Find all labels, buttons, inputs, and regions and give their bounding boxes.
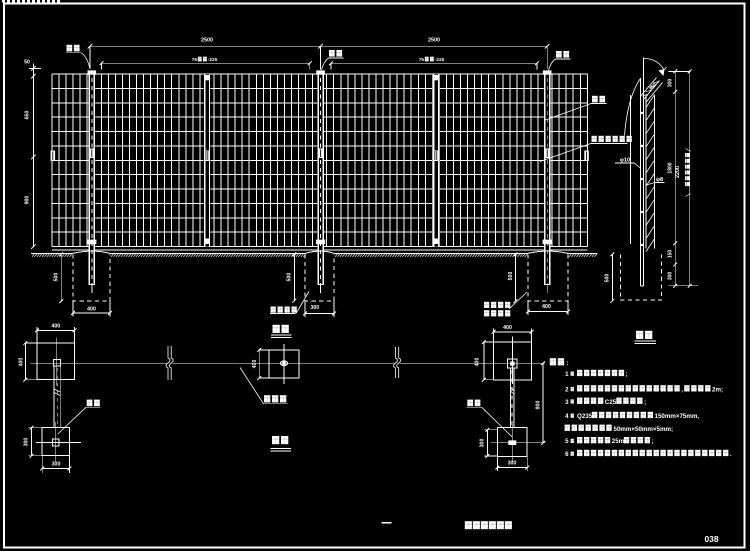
svg-text:800: 800 (535, 401, 541, 410)
svg-text:C25: C25 (605, 399, 617, 406)
svg-text:φ8: φ8 (656, 177, 663, 183)
svg-text:,: , (681, 386, 683, 393)
svg-text:500: 500 (508, 272, 514, 281)
svg-text:900: 900 (25, 196, 31, 205)
svg-text:400: 400 (252, 360, 258, 369)
svg-text:150: 150 (668, 250, 674, 259)
svg-text:6: 6 (565, 451, 569, 458)
svg-text:300: 300 (508, 460, 517, 466)
svg-text:300: 300 (23, 438, 29, 447)
svg-text:2500: 2500 (201, 38, 213, 44)
svg-text:400: 400 (542, 304, 551, 310)
svg-text:300: 300 (52, 462, 61, 468)
svg-text:25m: 25m (612, 438, 625, 445)
svg-text:-225: -225 (435, 57, 445, 62)
svg-text:50: 50 (24, 60, 30, 66)
svg-text:;: ; (644, 399, 646, 406)
svg-text:300: 300 (310, 305, 319, 311)
svg-text:650: 650 (25, 111, 31, 120)
svg-text:400: 400 (51, 323, 60, 329)
svg-text:300: 300 (668, 79, 674, 88)
svg-text:;: ; (652, 438, 654, 445)
svg-text:50mm×50mm×5mm;: 50mm×50mm×5mm; (614, 426, 674, 433)
svg-text:Q235: Q235 (577, 413, 593, 420)
svg-text:400: 400 (475, 358, 481, 367)
svg-text:038: 038 (705, 534, 719, 544)
svg-text:500: 500 (54, 273, 60, 282)
svg-text:150mm×75mm,: 150mm×75mm, (655, 413, 700, 420)
svg-text:400: 400 (87, 306, 96, 312)
svg-text:400: 400 (503, 325, 512, 331)
svg-text:;: ; (626, 371, 628, 378)
svg-text:3: 3 (565, 399, 569, 406)
svg-text:75: 75 (419, 57, 425, 62)
svg-text:5: 5 (565, 438, 569, 445)
svg-text:500: 500 (605, 274, 611, 283)
svg-text:1: 1 (565, 371, 569, 378)
svg-text:2500: 2500 (428, 38, 440, 44)
svg-text:400: 400 (19, 358, 25, 367)
svg-text:φ10: φ10 (620, 157, 630, 163)
svg-text::: : (566, 360, 568, 367)
svg-text:300: 300 (479, 439, 485, 448)
svg-text:500: 500 (287, 273, 293, 282)
svg-text:-225: -225 (208, 57, 218, 62)
svg-text:300: 300 (668, 272, 674, 281)
svg-text:2m;: 2m; (712, 386, 723, 393)
svg-text:1800: 1800 (668, 162, 674, 173)
svg-text:2: 2 (565, 386, 569, 393)
svg-text:.: . (730, 451, 732, 458)
svg-text:2200: 2200 (675, 166, 681, 178)
svg-text:75: 75 (192, 57, 198, 62)
svg-text:4: 4 (565, 413, 569, 420)
